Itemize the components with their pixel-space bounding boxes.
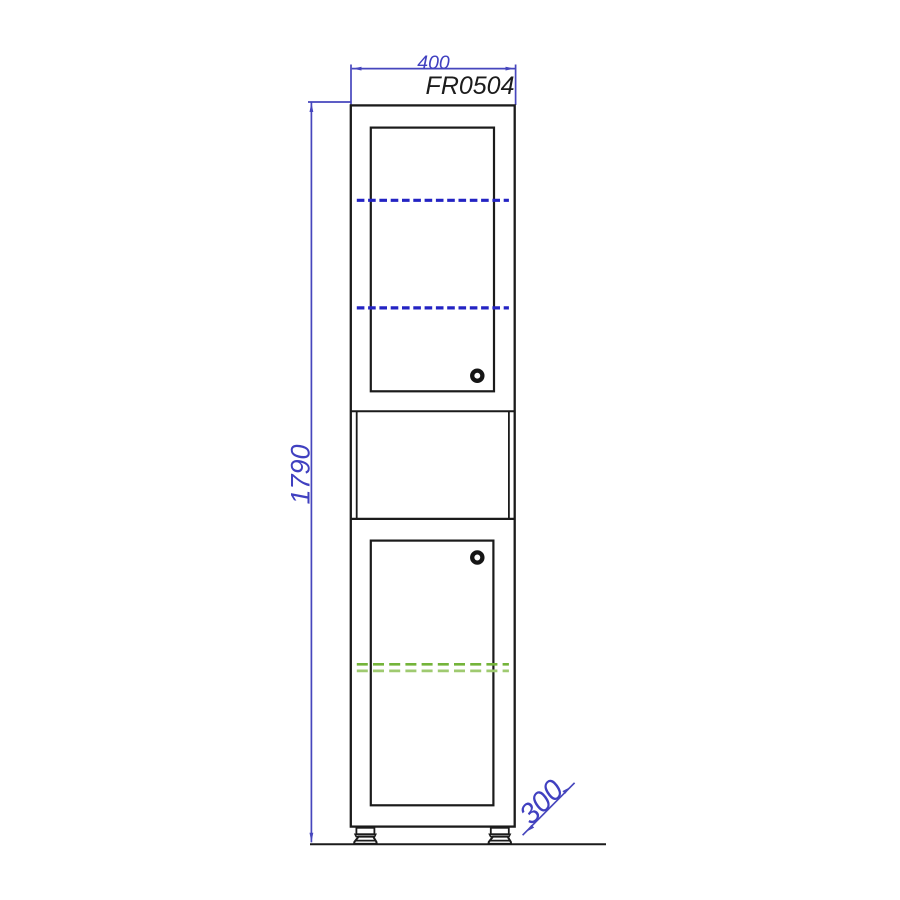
svg-text:1790: 1790 — [286, 444, 316, 504]
svg-text:FR0504: FR0504 — [426, 72, 515, 100]
svg-text:400: 400 — [417, 52, 450, 74]
